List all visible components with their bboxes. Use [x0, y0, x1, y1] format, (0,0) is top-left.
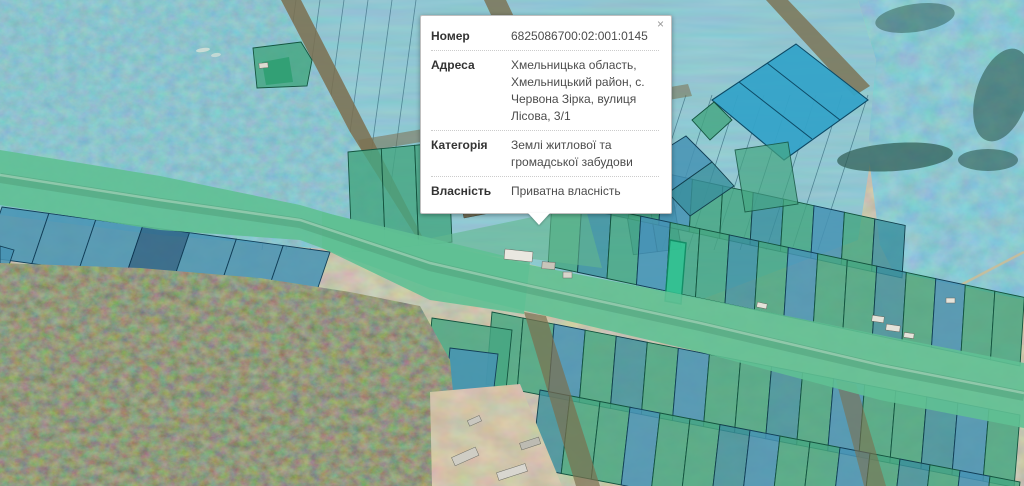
- cadastral-parcel[interactable]: [262, 57, 293, 85]
- popup-row-number: Номер 6825086700:02:001:0145: [431, 22, 659, 50]
- cadastral-parcel[interactable]: [672, 348, 709, 426]
- field-label: Власність: [431, 183, 511, 200]
- cadastral-parcel[interactable]: [766, 367, 803, 445]
- cadastral-parcel[interactable]: [991, 291, 1024, 366]
- cadastral-parcel[interactable]: [696, 229, 730, 304]
- popup-row-address: Адреса Хмельницька область, Хмельницький…: [431, 50, 659, 130]
- cadastral-parcel[interactable]: [961, 285, 995, 360]
- cadastral-parcel[interactable]: [735, 142, 798, 212]
- cadastral-parcel[interactable]: [843, 260, 877, 335]
- ownership-type: Приватна власність: [511, 183, 659, 200]
- close-icon[interactable]: ×: [657, 18, 664, 30]
- field-label: Номер: [431, 28, 511, 45]
- cadastral-parcel[interactable]: [637, 216, 671, 291]
- map-canvas[interactable]: × Номер 6825086700:02:001:0145 Адреса Хм…: [0, 0, 1024, 486]
- cadastral-parcel[interactable]: [641, 342, 678, 420]
- field-label: Категорія: [431, 137, 511, 171]
- cadastral-number: 6825086700:02:001:0145: [511, 28, 659, 45]
- parcel-address: Хмельницька область, Хмельницький район,…: [511, 57, 659, 125]
- cadastral-parcel[interactable]: [607, 210, 641, 285]
- cadastral-parcel[interactable]: [725, 235, 759, 310]
- popup-row-ownership: Власність Приватна власність: [431, 176, 659, 205]
- popup-callout-tail: [528, 213, 550, 225]
- cadastral-parcel[interactable]: [610, 336, 647, 414]
- popup-row-category: Категорія Землі житлової та громадської …: [431, 130, 659, 176]
- cadastral-parcel[interactable]: [735, 360, 772, 438]
- cadastral-parcel[interactable]: [814, 254, 848, 329]
- cadastral-parcel[interactable]: [784, 247, 818, 322]
- cadastral-parcel[interactable]: [932, 279, 966, 354]
- cadastral-parcel[interactable]: [579, 330, 616, 408]
- parcel-info-popup: × Номер 6825086700:02:001:0145 Адреса Хм…: [420, 15, 672, 214]
- field-label: Адреса: [431, 57, 511, 125]
- land-category: Землі житлової та громадської забудови: [511, 137, 659, 171]
- cadastral-parcel[interactable]: [703, 354, 740, 432]
